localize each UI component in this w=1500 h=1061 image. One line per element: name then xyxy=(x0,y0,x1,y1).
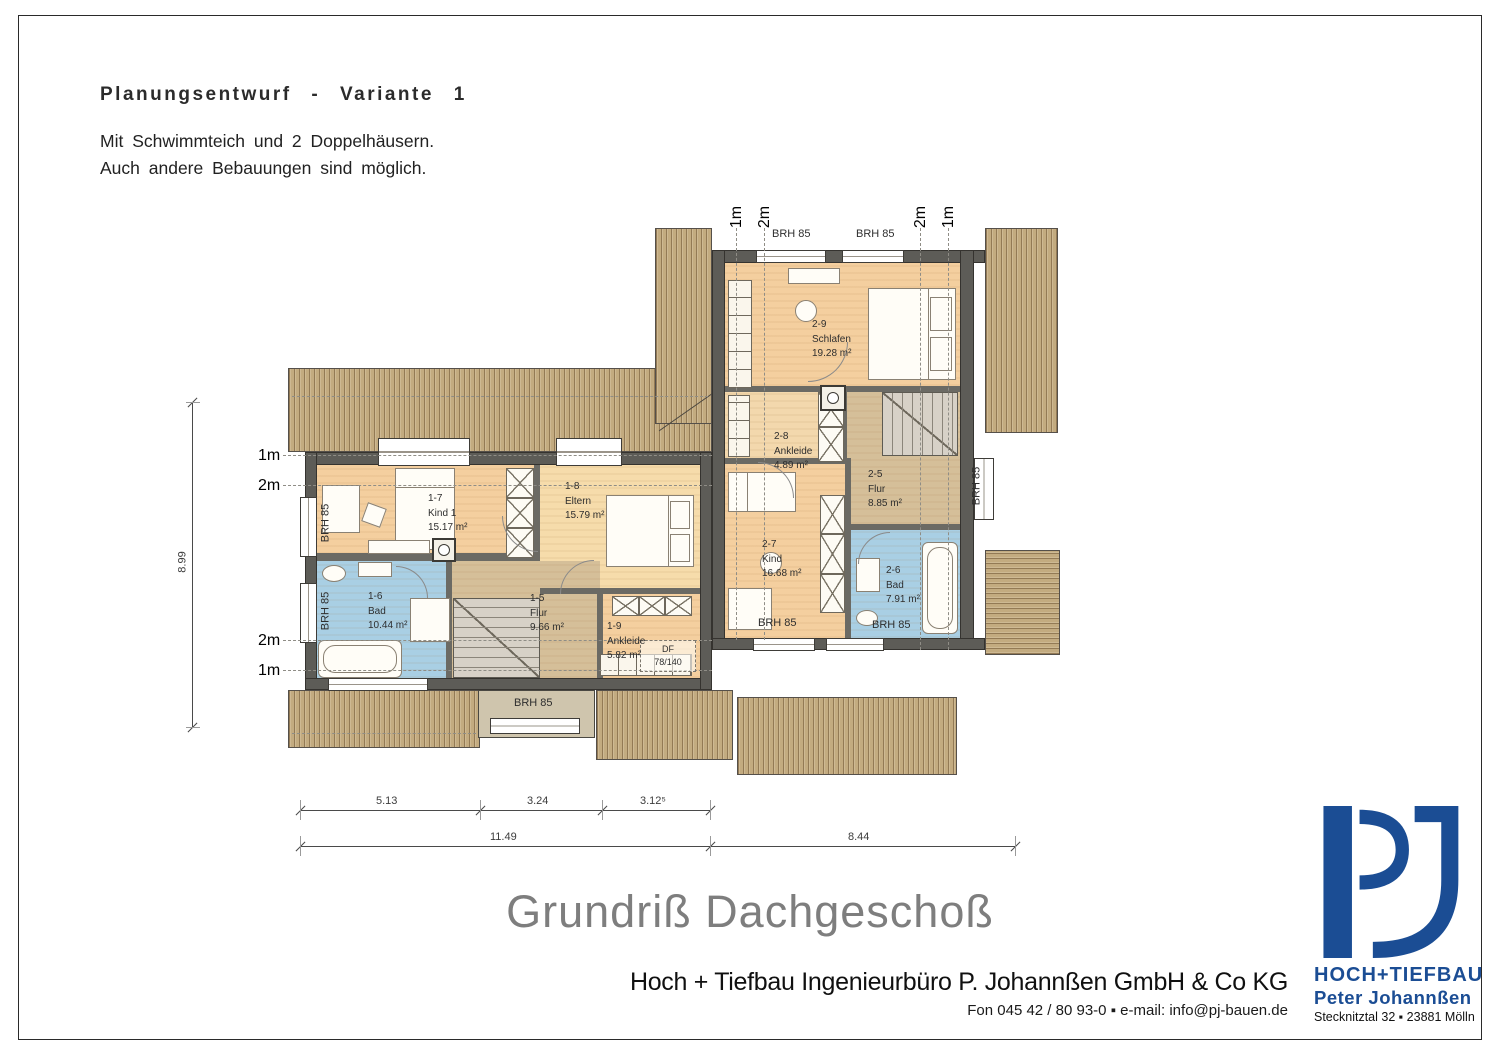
brh-label-left-kind1: BRH 85 xyxy=(319,504,331,543)
dim-total-right-label: 8.44 xyxy=(848,831,869,843)
room-label-ankleide19: 1-9 Ankleide 5.82 m² xyxy=(607,620,645,664)
room-name: Schlafen xyxy=(812,333,851,348)
roof-bottom-dashed-line xyxy=(292,733,476,734)
dim-line-row2 xyxy=(300,846,1016,847)
shower-bad16 xyxy=(410,598,450,642)
room-area: 5.82 m² xyxy=(607,649,645,664)
room-id: 1-7 xyxy=(428,492,467,507)
bed-schlafen xyxy=(868,288,956,380)
room-area: 16.68 m² xyxy=(762,567,801,582)
height-mark-left-3: 1m xyxy=(258,662,280,680)
df-line1: DF xyxy=(641,643,695,656)
bed-eltern xyxy=(606,495,694,567)
height-line-top-1m-right xyxy=(948,228,949,650)
height-mark-left-2: 2m xyxy=(258,632,280,650)
room-label-schlafen: 2-9 Schlafen 19.28 m² xyxy=(812,318,851,362)
sideboard-kind1 xyxy=(368,540,430,554)
dim-seg1-label: 5.13 xyxy=(376,795,397,807)
room-name: Bad xyxy=(368,605,407,620)
room-label-eltern: 1-8 Eltern 15.79 m² xyxy=(565,480,604,524)
dim-total-left-label: 11.49 xyxy=(490,831,517,843)
window-bottom-bad26 xyxy=(826,638,884,651)
window-left-bad xyxy=(300,583,317,643)
height-line-left-2m-top xyxy=(283,485,712,486)
room-label-kind27: 2-7 Kind 16.68 m² xyxy=(762,538,801,582)
partition-kind27-right xyxy=(845,458,851,638)
df-line2: 78/140 xyxy=(641,656,695,669)
dim-ext xyxy=(480,800,481,820)
height-mark-top-3: 1m xyxy=(940,206,958,228)
right-house-left-wall xyxy=(712,250,725,650)
room-name: Kind 1 xyxy=(428,507,467,522)
height-line-left-1m-top xyxy=(283,455,712,456)
room-label-kind1: 1-7 Kind 1 15.17 m² xyxy=(428,492,467,536)
pj-logo-icon xyxy=(1314,806,1464,958)
room-id: 1-6 xyxy=(368,590,407,605)
room-name: Kind xyxy=(762,553,801,568)
room-label-bad26: 2-6 Bad 7.91 m² xyxy=(886,564,920,608)
window-top-schlafen-2 xyxy=(842,250,904,263)
roof-bottom-right xyxy=(737,697,957,775)
chimney-left-house xyxy=(432,538,456,562)
bottom-dormer-window xyxy=(490,718,580,734)
roof-strip-right-of-right-house xyxy=(985,228,1058,433)
dim-seg3-label: 3.12⁵ xyxy=(640,795,666,807)
toilet-bad16 xyxy=(322,565,346,582)
room-id: 2-7 xyxy=(762,538,801,553)
height-mark-top-1: 2m xyxy=(756,206,774,228)
contact-line: Fon 045 42 / 80 93-0 ▪ e-mail: info@pj-b… xyxy=(967,1002,1288,1019)
wardrobe-x-ankleide19 xyxy=(612,596,692,616)
roof-eave-dashed-line xyxy=(292,396,708,397)
roof-strip-left-of-right-house xyxy=(655,228,712,424)
brh-label-top-1: BRH 85 xyxy=(772,228,811,240)
room-area: 15.79 m² xyxy=(565,509,604,524)
party-wall-left xyxy=(700,452,712,690)
dim-ext xyxy=(300,800,301,820)
company-logo: HOCH+TIEFBAU Peter Johannßen Stecknitzta… xyxy=(1312,806,1474,1034)
room-name: Eltern xyxy=(565,495,604,510)
room-name: Flur xyxy=(530,607,564,622)
window-left-kind1 xyxy=(300,497,317,557)
dim-ext xyxy=(1015,836,1016,856)
room-area: 15.17 m² xyxy=(428,521,467,536)
dormer-window-kind1 xyxy=(378,438,470,466)
roof-window-df: DF 78/140 xyxy=(640,640,696,672)
logo-address: Stecknitztal 32 ▪ 23881 Mölln xyxy=(1314,1010,1475,1024)
room-area: 7.91 m² xyxy=(886,593,920,608)
wardrobe-x-kind27 xyxy=(820,495,845,613)
room-label-flur15: 1-5 Flur 9.66 m² xyxy=(530,592,564,636)
dim-ext xyxy=(300,836,301,856)
dresser-schlafen xyxy=(788,268,840,284)
roof-bottom-left xyxy=(288,690,480,748)
height-mark-left-0: 1m xyxy=(258,447,280,465)
height-mark-top-2: 2m xyxy=(912,206,930,228)
room-name: Ankleide xyxy=(607,635,645,650)
room-name: Ankleide xyxy=(774,445,812,460)
dim-seg2-label: 3.24 xyxy=(527,795,548,807)
room-id: 1-9 xyxy=(607,620,645,635)
partition-flur-bad26 xyxy=(851,524,960,530)
room-id: 2-9 xyxy=(812,318,851,333)
height-mark-top-0: 1m xyxy=(728,206,746,228)
height-mark-left-1: 2m xyxy=(258,477,280,495)
room-area: 19.28 m² xyxy=(812,347,851,362)
dim-ext xyxy=(186,727,200,728)
stairs-left-house xyxy=(453,598,540,678)
window-top-schlafen-1 xyxy=(756,250,826,263)
roof-bottom-mid xyxy=(596,690,733,760)
bathtub-bad26 xyxy=(922,542,958,634)
room-label-flur25: 2-5 Flur 8.85 m² xyxy=(868,468,902,512)
left-house-left-wall xyxy=(305,452,317,690)
dim-line-vertical xyxy=(192,402,193,728)
dim-line-row1 xyxy=(300,810,711,811)
height-line-top-2m-right xyxy=(920,228,921,650)
window-bottom-bad xyxy=(328,678,428,691)
room-name: Bad xyxy=(886,579,920,594)
room-area: 9.66 m² xyxy=(530,621,564,636)
drawing-title: Grundriß Dachgeschoß xyxy=(0,886,1500,938)
right-house-right-wall xyxy=(960,250,974,650)
brh-label-bottom-dormer: BRH 85 xyxy=(514,697,553,709)
room-id: 1-5 xyxy=(530,592,564,607)
closet-schlafen-left xyxy=(728,280,752,388)
dim-height-label: 8.99 xyxy=(177,551,189,572)
roof-top-left xyxy=(288,368,712,452)
dim-ext xyxy=(186,402,200,403)
room-area: 4.89 m² xyxy=(774,459,812,474)
dormer-window-eltern xyxy=(556,438,622,466)
company-name: Hoch + Tiefbau Ingenieurbüro P. Johannße… xyxy=(630,968,1288,997)
room-name: Flur xyxy=(868,483,902,498)
height-line-top-1m-left xyxy=(736,228,737,640)
logo-brand-line2: Peter Johannßen xyxy=(1314,987,1472,1009)
bathtub-bad16 xyxy=(318,640,402,678)
brh-label-bottom-bad26: BRH 85 xyxy=(872,619,911,631)
left-house-top-wall xyxy=(305,452,712,465)
sink-bad16 xyxy=(358,562,392,577)
window-bottom-kind27 xyxy=(753,638,815,651)
brh-label-right-flur: BRH 85 xyxy=(970,467,982,506)
room-label-ankleide28: 2-8 Ankleide 4.89 m² xyxy=(774,430,812,474)
room-id: 1-8 xyxy=(565,480,604,495)
roof-right-lower xyxy=(985,550,1060,655)
brh-label-bottom-kind27: BRH 85 xyxy=(758,617,797,629)
closet-ankleide28 xyxy=(728,395,750,457)
dim-ext xyxy=(710,800,711,820)
dim-ext xyxy=(602,800,603,820)
brh-label-left-bad: BRH 85 xyxy=(319,592,331,631)
room-id: 2-6 xyxy=(886,564,920,579)
chimney-right-house xyxy=(820,385,846,411)
dim-ext xyxy=(710,836,711,856)
room-area: 10.44 m² xyxy=(368,619,407,634)
room-label-bad16: 1-6 Bad 10.44 m² xyxy=(368,590,407,634)
logo-brand-line1: HOCH+TIEFBAU xyxy=(1314,964,1483,987)
room-area: 8.85 m² xyxy=(868,497,902,512)
room-id: 2-8 xyxy=(774,430,812,445)
room-id: 2-5 xyxy=(868,468,902,483)
brh-label-top-2: BRH 85 xyxy=(856,228,895,240)
